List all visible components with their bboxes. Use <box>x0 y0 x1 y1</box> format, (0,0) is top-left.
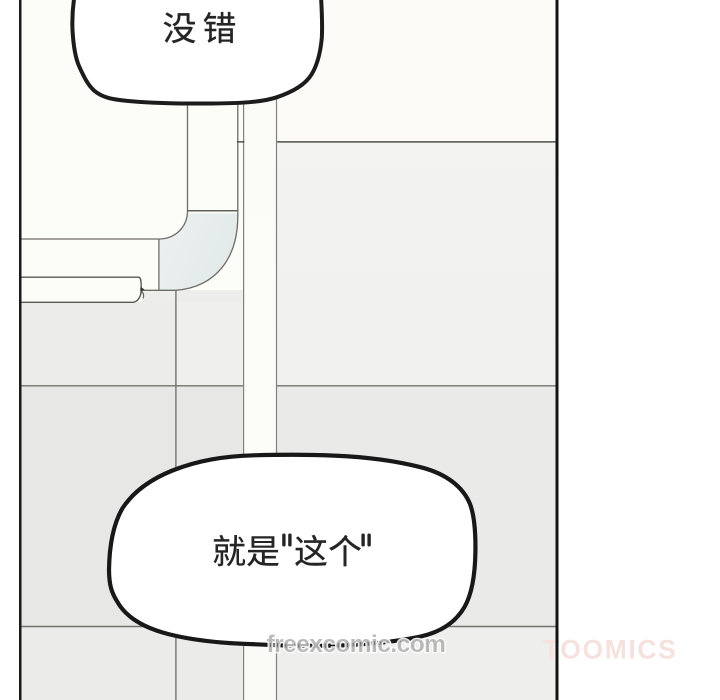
svg-text:freexcomic.com: freexcomic.com <box>267 631 446 658</box>
svg-text:TOOMICS: TOOMICS <box>543 635 677 665</box>
